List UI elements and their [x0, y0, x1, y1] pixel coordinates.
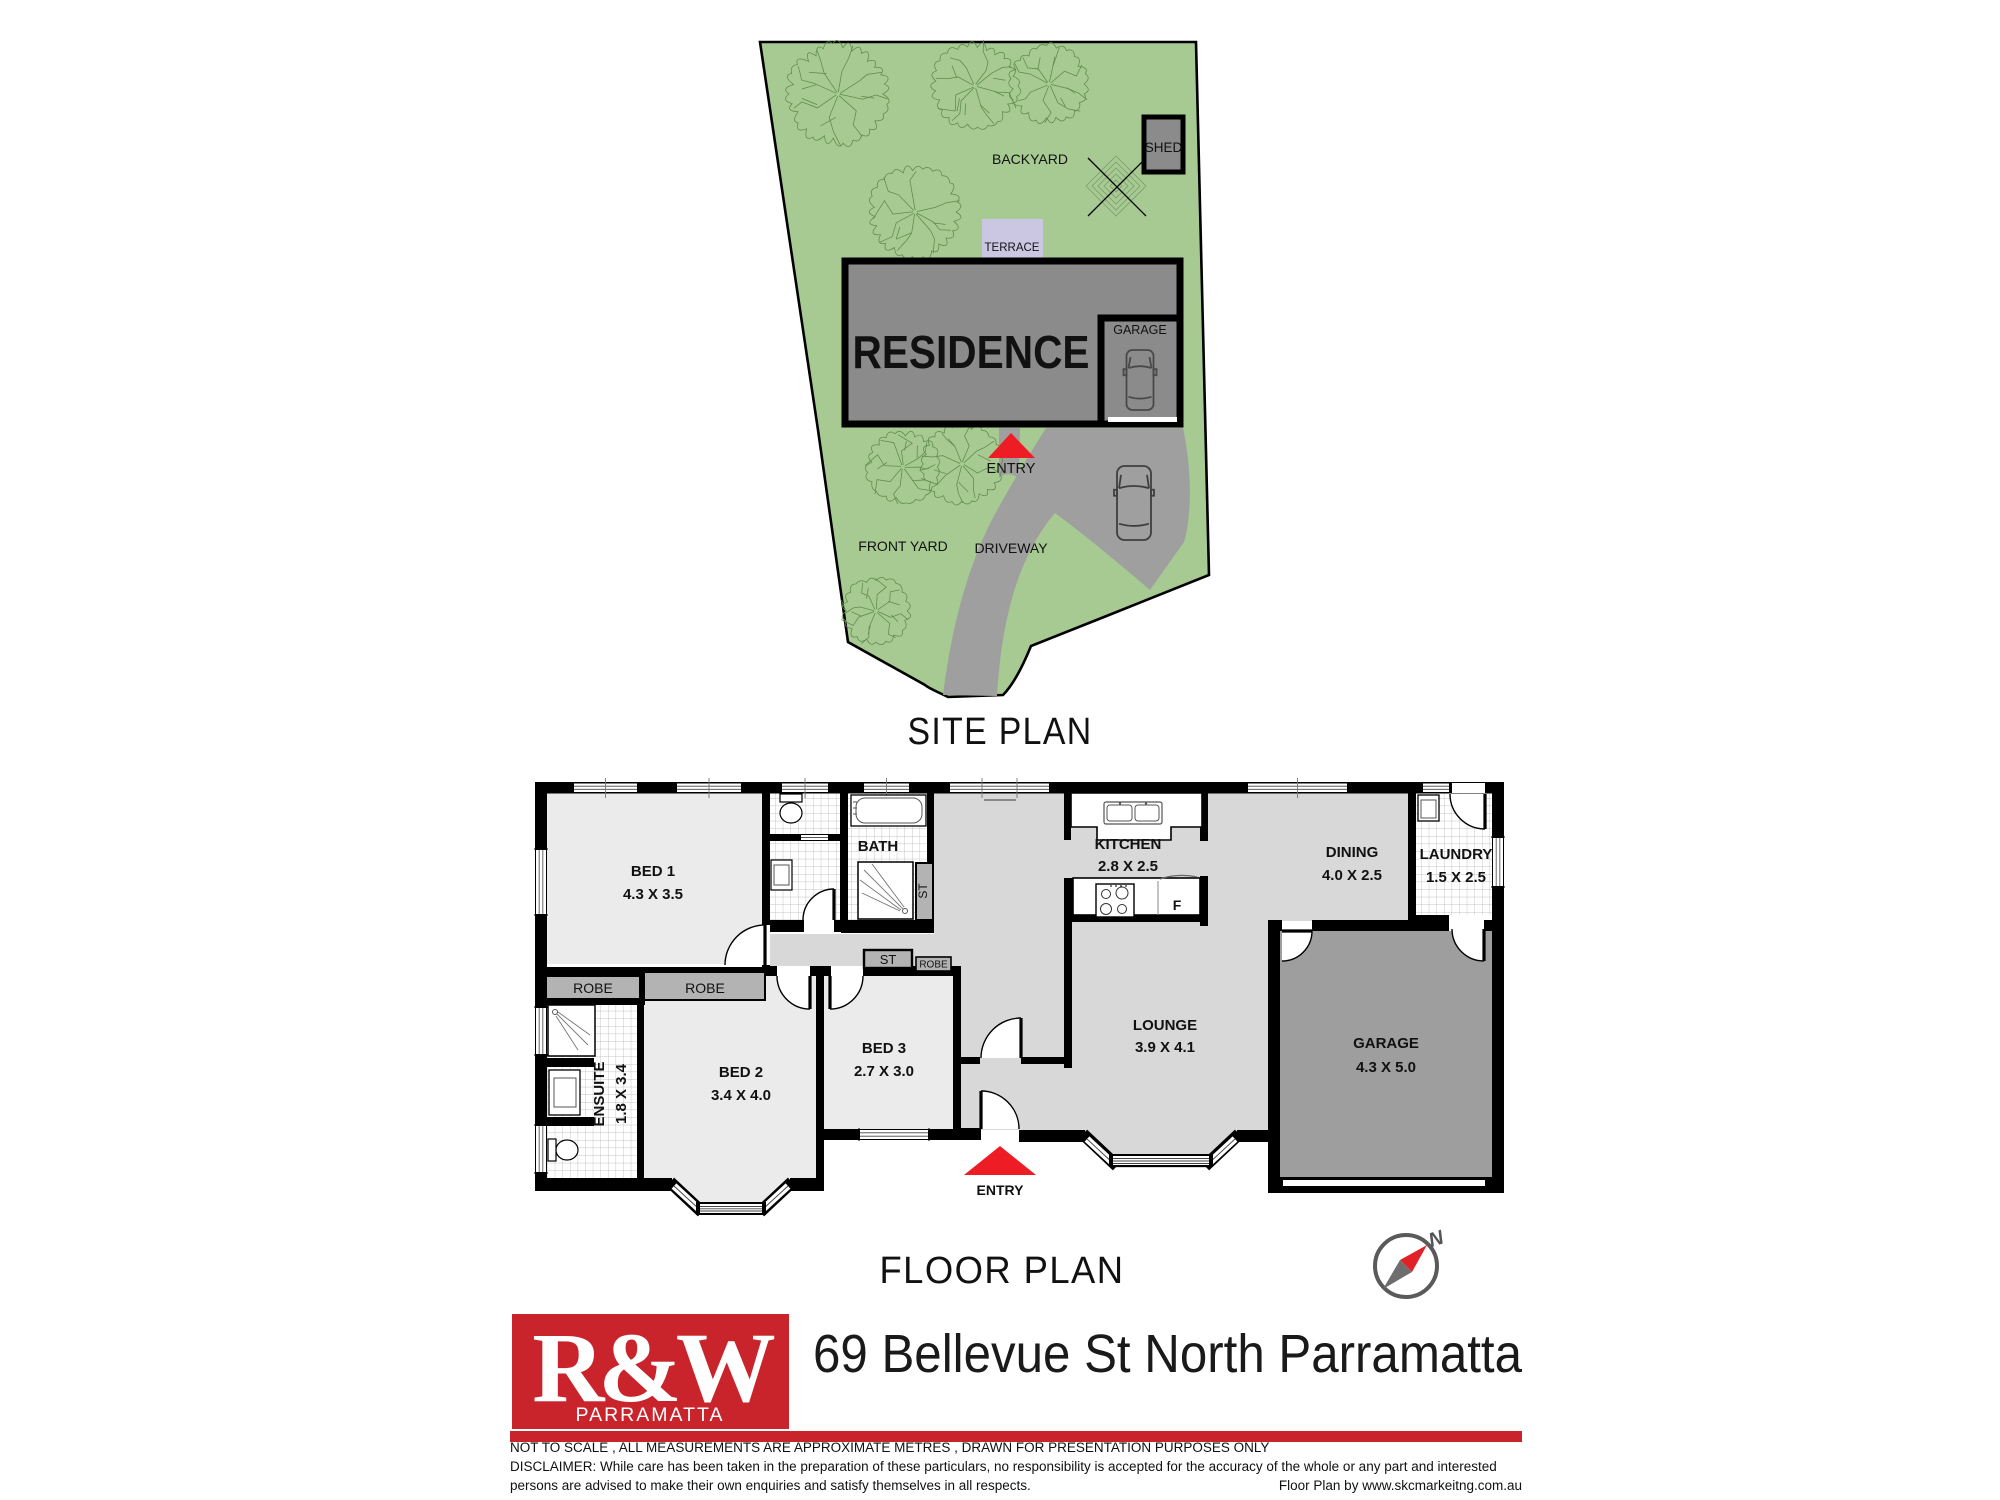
svg-text:NOT TO SCALE , ALL MEASUREMENT: NOT TO SCALE , ALL MEASUREMENTS ARE APPR… — [510, 1440, 1269, 1455]
svg-text:ROBE: ROBE — [919, 960, 948, 971]
svg-text:BED 3: BED 3 — [862, 1040, 906, 1057]
svg-text:Floor Plan by www.skcmarkeitng: Floor Plan by www.skcmarkeitng.com.au — [1279, 1478, 1522, 1493]
svg-text:BATH: BATH — [858, 838, 899, 855]
svg-text:LOUNGE: LOUNGE — [1133, 1017, 1197, 1034]
svg-text:SHED: SHED — [1145, 140, 1183, 155]
svg-text:DINING: DINING — [1326, 844, 1379, 861]
svg-text:BED 1: BED 1 — [631, 863, 675, 880]
svg-text:BACKYARD: BACKYARD — [992, 151, 1068, 167]
svg-text:ENTRY: ENTRY — [987, 461, 1036, 477]
svg-text:RESIDENCE: RESIDENCE — [853, 326, 1090, 378]
svg-text:3.9 X 4.1: 3.9 X 4.1 — [1135, 1039, 1195, 1056]
svg-text:DRIVEWAY: DRIVEWAY — [974, 540, 1048, 556]
svg-text:3.4 X 4.0: 3.4 X 4.0 — [711, 1087, 771, 1104]
svg-text:BED 2: BED 2 — [719, 1064, 763, 1081]
svg-text:DISCLAIMER: While care has be: DISCLAIMER: While care has been taken in… — [510, 1459, 1497, 1474]
svg-text:GARAGE: GARAGE — [1113, 323, 1167, 337]
svg-text:GARAGE: GARAGE — [1353, 1035, 1419, 1052]
svg-text:TERRACE: TERRACE — [985, 242, 1040, 254]
svg-text:ST: ST — [916, 883, 930, 899]
svg-text:1.5 X 2.5: 1.5 X 2.5 — [1426, 869, 1486, 886]
svg-text:FRONT YARD: FRONT YARD — [858, 538, 947, 554]
svg-text:4.0 X 2.5: 4.0 X 2.5 — [1322, 867, 1382, 884]
svg-text:69 Bellevue St North Parramat: 69 Bellevue St North Parramatta — [813, 1324, 1523, 1384]
svg-text:F: F — [1173, 897, 1182, 913]
svg-text:ROBE: ROBE — [685, 980, 725, 996]
svg-text:4.3 X 3.5: 4.3 X 3.5 — [623, 886, 683, 903]
svg-text:LAUNDRY: LAUNDRY — [1420, 846, 1493, 863]
svg-text:2.7 X 3.0: 2.7 X 3.0 — [854, 1063, 914, 1080]
svg-text:persons are advised to make th: persons are advised to make their own en… — [510, 1478, 1031, 1493]
svg-text:ENTRY: ENTRY — [977, 1182, 1025, 1198]
svg-text:SITE PLAN: SITE PLAN — [908, 711, 1093, 753]
svg-text:2.8 X 2.5: 2.8 X 2.5 — [1098, 858, 1158, 875]
svg-text:ROBE: ROBE — [573, 980, 613, 996]
svg-text:ENSUITE: ENSUITE — [591, 1061, 608, 1126]
svg-text:1.8 X 3.4: 1.8 X 3.4 — [613, 1063, 630, 1124]
svg-text:FLOOR PLAN: FLOOR PLAN — [880, 1250, 1125, 1292]
svg-text:ST: ST — [880, 952, 897, 967]
svg-text:PARRAMATTA: PARRAMATTA — [576, 1404, 725, 1426]
svg-text:KITCHEN: KITCHEN — [1095, 836, 1162, 853]
svg-text:4.3 X 5.0: 4.3 X 5.0 — [1356, 1059, 1416, 1076]
